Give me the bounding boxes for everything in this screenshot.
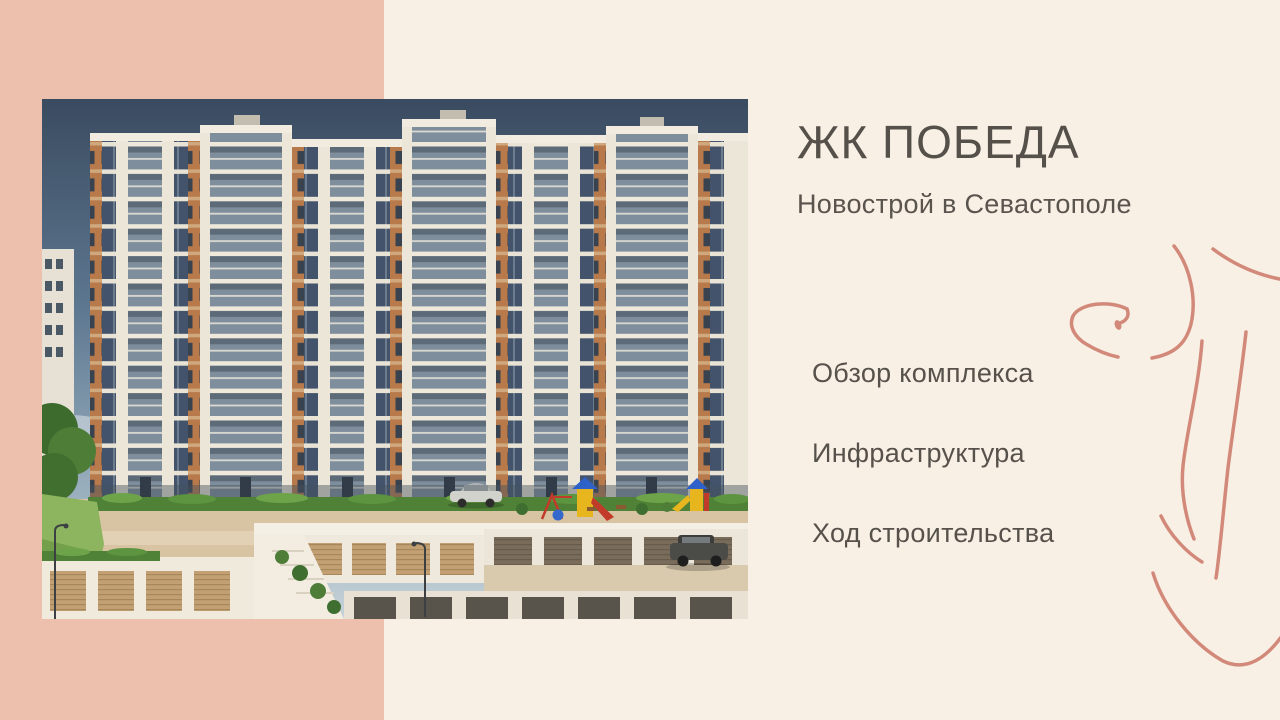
agenda-item-infrastructure: Инфраструктура [812, 438, 1054, 472]
slide-canvas: ЖК ПОБЕДА Новострой в Севастополе Обзор … [0, 0, 1280, 720]
text-column: ЖК ПОБЕДА Новострой в Севастополе [797, 116, 1217, 220]
agenda-item-construction: Ход строительства [812, 518, 1054, 552]
page-subtitle: Новострой в Севастополе [797, 189, 1217, 220]
complex-render-photo [42, 99, 748, 619]
apartment-towers [90, 110, 748, 501]
page-title: ЖК ПОБЕДА [797, 116, 1217, 169]
agenda-list: Обзор комплекса Инфраструктура Ход строи… [812, 358, 1054, 598]
agenda-item-overview: Обзор комплекса [812, 358, 1054, 392]
complex-render-image [42, 99, 748, 619]
figure-line-art-illustration [1030, 235, 1280, 705]
